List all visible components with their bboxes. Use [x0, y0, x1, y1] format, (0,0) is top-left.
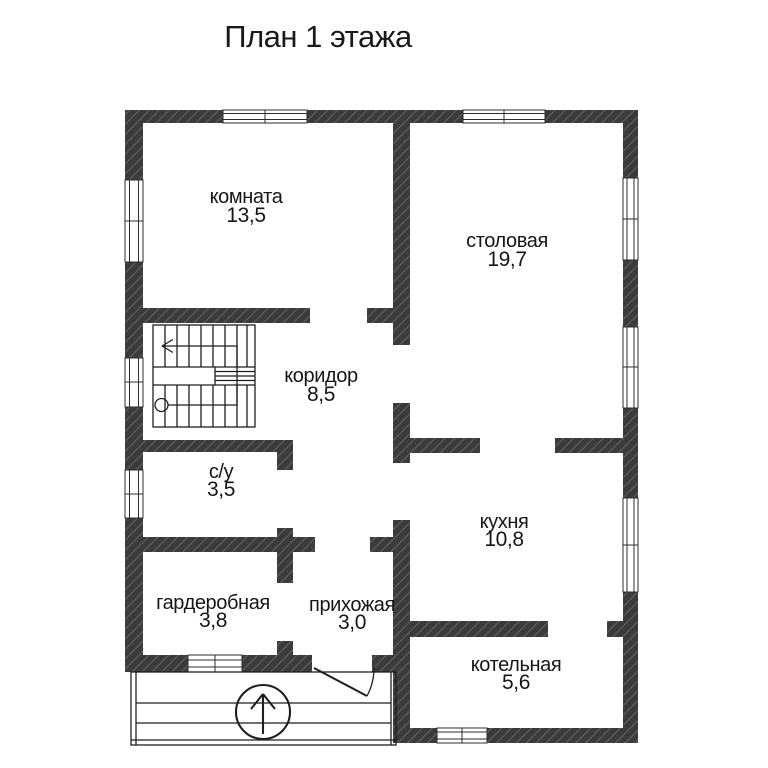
- wall-garderob-right-b: [277, 641, 293, 672]
- staircase: [153, 325, 255, 427]
- wall-komnata-bottom-b: [367, 308, 393, 323]
- room-label-kuhnya: кухня 10,8: [480, 511, 529, 551]
- staircase-landing-lines: [215, 372, 255, 381]
- staircase-lower-treads: [165, 385, 247, 427]
- window-garderob-bottom: [188, 655, 242, 672]
- room-label-stolovaya: столовая 19,7: [466, 230, 548, 271]
- porch: [131, 672, 396, 745]
- wall-top-exterior: [125, 110, 638, 123]
- wall-kotelnaya-top-b: [607, 621, 623, 637]
- page-title: План 1 этажа: [224, 19, 413, 54]
- window-stolovaya-top: [463, 110, 545, 123]
- wall-koridor-bottom: [143, 440, 293, 452]
- entrance-door: [314, 667, 374, 696]
- window-stolovaya-right-2: [623, 327, 638, 408]
- window-kuhnya-right: [623, 498, 638, 592]
- wall-su-right-a: [277, 440, 293, 470]
- room-label-garderobnaya: гардеробная 3,8: [156, 592, 270, 632]
- window-stolovaya-right-1: [623, 178, 638, 260]
- room-area: 19,7: [487, 248, 526, 271]
- room-area: 13,5: [226, 204, 265, 227]
- room-area: 10,8: [484, 528, 523, 551]
- wall-kitchen-top-a: [410, 438, 480, 453]
- wall-bottom-left-b: [372, 655, 393, 672]
- room-label-komnata: комната 13,5: [210, 186, 284, 227]
- window-su-left: [125, 470, 143, 518]
- window-komnata-left: [125, 180, 143, 262]
- window-kotelnaya-bottom: [437, 728, 487, 743]
- wall-kotelnaya-top-a: [410, 621, 548, 637]
- room-label-koridor: коридор 8,5: [284, 365, 358, 406]
- wall-bottom-kotelnaya: [393, 728, 638, 743]
- wall-komnata-bottom-a: [143, 308, 310, 323]
- floor-plan-drawing: План 1 этажа: [0, 0, 768, 768]
- room-area: 3,8: [199, 609, 227, 632]
- room-area: 3,0: [338, 611, 366, 634]
- floor-plan-page: План 1 этажа: [0, 0, 768, 768]
- window-stairs-left: [125, 358, 143, 407]
- wall-garderob-top-b: [370, 537, 393, 552]
- wall-central-upper: [393, 110, 410, 345]
- room-label-prihozhaya: прихожая 3,0: [309, 594, 395, 634]
- room-area: 5,6: [502, 671, 530, 694]
- wall-central-middle: [393, 403, 410, 463]
- room-label-su: с/у 3,5: [207, 461, 235, 501]
- staircase-start-circle: [155, 399, 168, 412]
- window-komnata-top: [223, 110, 307, 123]
- room-area: 8,5: [307, 383, 335, 406]
- wall-kitchen-top-b: [555, 438, 623, 453]
- room-area: 3,5: [207, 478, 235, 501]
- room-label-kotelnaya: котельная 5,6: [471, 654, 562, 694]
- wall-garderob-right-a: [277, 552, 293, 583]
- wall-garderob-top-a: [125, 537, 315, 552]
- entrance-direction-symbol: [236, 685, 290, 739]
